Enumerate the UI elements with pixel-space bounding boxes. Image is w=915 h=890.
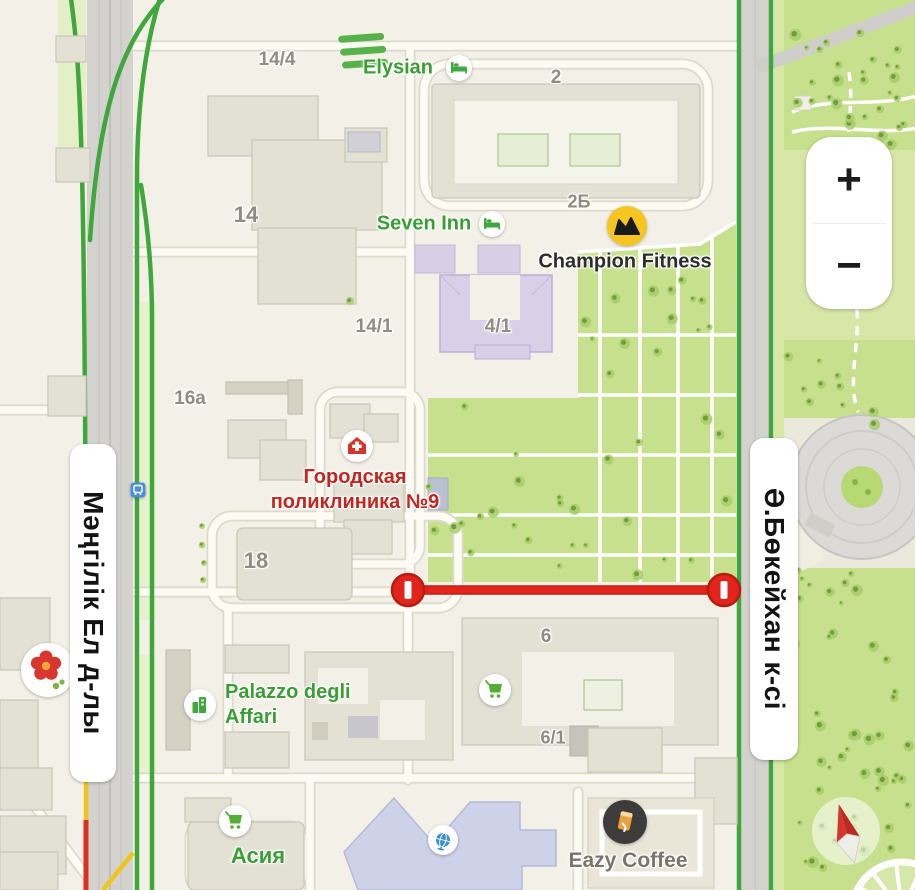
coffee-cup-icon[interactable] [601, 798, 649, 846]
poi-label-polyclinic-line2: поликлиника №9 [271, 490, 440, 515]
building-number-2b: 2Б [568, 192, 591, 213]
building-number-6-1: 6/1 [540, 728, 565, 749]
street-label-left-text: Мәңгілік Ел д-лы [77, 491, 109, 735]
flower-icon[interactable] [19, 641, 77, 699]
street-label-right: Ә.Бөкейхан к-сі [750, 438, 798, 760]
building-number-14-1: 14/1 [356, 316, 393, 338]
zoom-control: + − [806, 137, 892, 309]
map-view: 14/4 Elysian 2 Seven Inn 2Б Champion Fit… [0, 0, 915, 890]
crown-icon[interactable] [605, 204, 649, 248]
poi-label-champion-fitness[interactable]: Champion Fitness [538, 251, 711, 274]
poi-label-palazzo[interactable]: Palazzo degli Affari [225, 680, 351, 730]
no-entry-marker-west [392, 574, 424, 606]
bed-icon[interactable] [445, 54, 473, 82]
street-label-right-text: Ә.Бөкейхан к-сі [758, 488, 790, 710]
building-number-4-1: 4/1 [485, 316, 511, 338]
building-number-6: 6 [541, 626, 552, 648]
building-number-2: 2 [551, 67, 562, 89]
building-2 [432, 84, 700, 198]
bed-icon[interactable] [478, 210, 506, 238]
zoom-in-button[interactable]: + [806, 137, 892, 223]
poi-label-eazy-coffee[interactable]: Eazy Coffee [568, 849, 687, 873]
globe-icon[interactable] [426, 823, 460, 857]
cart-icon[interactable] [477, 672, 513, 708]
building-number-16a: 16а [174, 388, 206, 410]
office-buildings-icon[interactable] [182, 687, 218, 723]
poi-label-palazzo-line1: Palazzo degli [225, 680, 351, 705]
bus-icon[interactable] [130, 482, 146, 498]
cart-icon[interactable] [217, 803, 253, 839]
poi-label-elysian[interactable]: Elysian [363, 57, 433, 80]
medical-house-icon[interactable] [339, 428, 375, 464]
building-number-14: 14 [234, 202, 258, 228]
poi-label-palazzo-line2: Affari [225, 705, 351, 730]
compass-button[interactable] [810, 795, 882, 867]
zoom-out-button[interactable]: − [806, 224, 892, 310]
poi-label-asia[interactable]: Асия [231, 843, 285, 869]
poi-label-polyclinic[interactable]: Городская поликлиника №9 [271, 465, 440, 515]
building-number-14-4: 14/4 [259, 49, 296, 71]
no-entry-marker-east [708, 574, 740, 606]
poi-label-polyclinic-line1: Городская [271, 465, 440, 490]
street-label-left: Мәңгілік Ел д-лы [70, 444, 116, 782]
building-number-18: 18 [244, 548, 268, 574]
poi-label-seven-inn[interactable]: Seven Inn [377, 213, 471, 236]
